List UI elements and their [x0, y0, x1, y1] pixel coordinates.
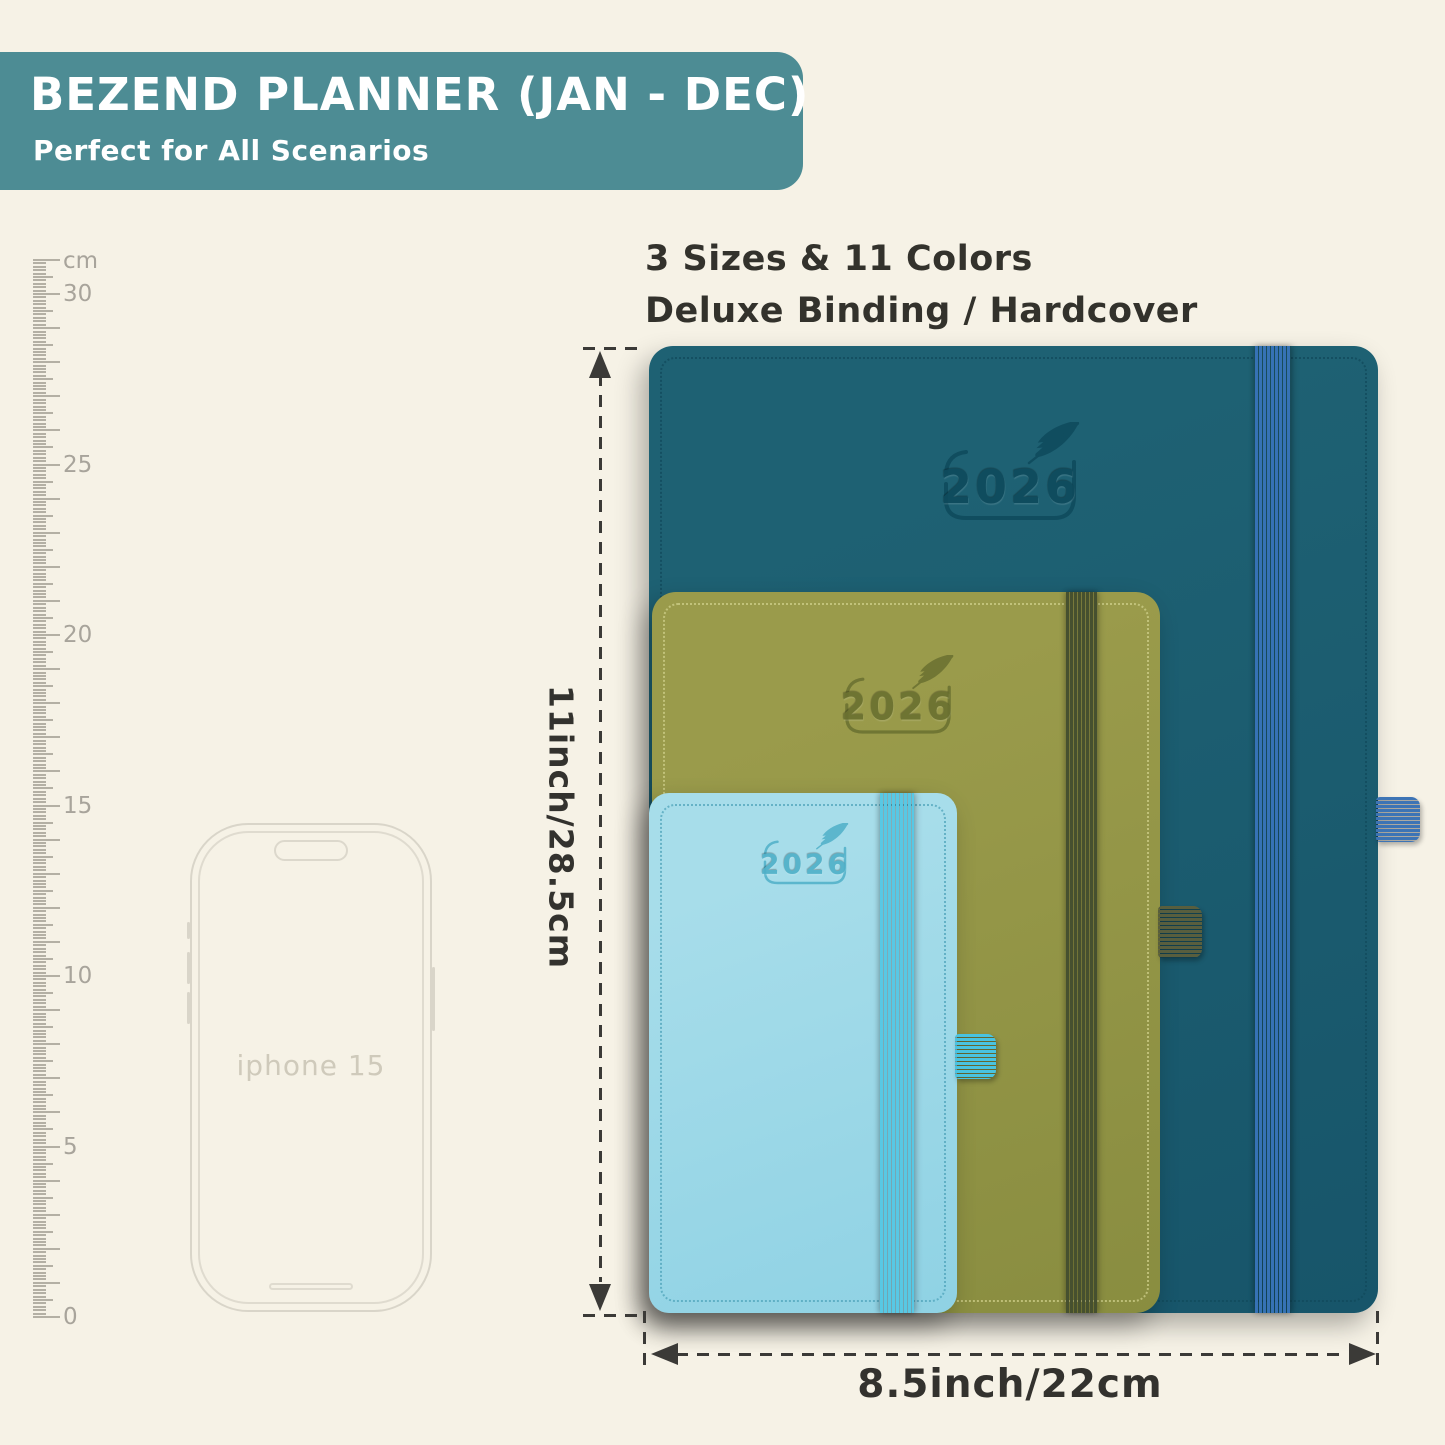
ruler-tick: [33, 1019, 46, 1021]
ruler-tick: [33, 286, 46, 288]
ruler-tick: [33, 399, 46, 401]
ruler-tick: [33, 481, 53, 483]
ruler-tick: [33, 1135, 46, 1137]
ruler-tick: [33, 944, 46, 946]
ruler-tick: [33, 805, 60, 807]
ruler-tick: [33, 361, 60, 363]
elastic-band-medium: [1066, 592, 1097, 1313]
ruler-tick: [33, 535, 46, 537]
ruler-tick: [33, 484, 46, 486]
ruler-tick: [33, 794, 46, 796]
ruler-tick: [33, 378, 53, 380]
ruler-tick: [33, 1060, 53, 1062]
ruler-tick: [33, 1040, 46, 1042]
ruler-tick: [33, 1258, 46, 1260]
width-dimension-label: 8.5inch/22cm: [857, 1362, 1162, 1407]
ruler-tick: [33, 549, 53, 551]
iphone-outline: iphone 15: [190, 823, 432, 1312]
ruler-tick: [33, 883, 46, 885]
ruler-tick: [33, 648, 46, 650]
ruler-tick: [33, 903, 46, 905]
arrow-up-icon: [589, 351, 611, 378]
ruler-tick: [33, 1009, 60, 1011]
ruler-tick: [33, 542, 46, 544]
ruler-tick: [33, 695, 46, 697]
ruler-tick: [33, 617, 53, 619]
ruler-tick: [33, 590, 46, 592]
ruler-tick: [33, 753, 53, 755]
ruler-tick: [33, 736, 60, 738]
ruler-tick: [33, 839, 60, 841]
ruler-tick: [33, 566, 60, 568]
ruler-tick: [33, 808, 46, 810]
ruler-tick: [33, 907, 60, 909]
ruler-tick: [33, 818, 46, 820]
ruler-tick: [33, 1122, 46, 1124]
ruler-tick: [33, 651, 53, 653]
ruler-tick: [33, 491, 46, 493]
ruler-unit-label: cm: [63, 248, 98, 274]
ruler-tick: [33, 1169, 46, 1171]
ruler-tick: [33, 392, 46, 394]
ruler-tick: [33, 1047, 46, 1049]
ruler-tick: [33, 276, 53, 278]
ruler-tick: [33, 1214, 60, 1216]
ruler-tick: [33, 1299, 53, 1301]
ruler-tick: [33, 559, 46, 561]
ruler-tick: [33, 511, 46, 513]
ruler-tick: [33, 1105, 46, 1107]
ruler-tick: [33, 893, 46, 895]
ruler-tick: [33, 460, 46, 462]
ruler-tick: [33, 685, 53, 687]
ruler-tick: [33, 487, 46, 489]
ruler-tick: [33, 941, 60, 943]
ruler-tick: [33, 719, 53, 721]
ruler-tick: [33, 689, 46, 691]
ruler-tick: [33, 1180, 60, 1182]
ruler-tick: [33, 880, 46, 882]
year-logo-medium: 2026: [834, 655, 962, 745]
ruler-tick: [33, 348, 46, 350]
year-logo-small: 2026: [755, 823, 855, 893]
banner-title: BEZEND PLANNER (JAN - DEC): [30, 68, 809, 121]
ruler-tick: [33, 569, 46, 571]
ruler-tick: [33, 1149, 46, 1151]
ruler-tick: [33, 842, 46, 844]
ruler-tick: [33, 607, 46, 609]
product-infographic: BEZEND PLANNER (JAN - DEC) Perfect for A…: [0, 0, 1445, 1445]
ruler-tick: [33, 637, 46, 639]
ruler-tick: [33, 1026, 53, 1028]
ruler-label: 30: [63, 281, 123, 307]
ruler-tick: [33, 1265, 53, 1267]
ruler-tick: [33, 406, 46, 408]
ruler-tick: [33, 576, 46, 578]
iphone-volume-up-button: [187, 952, 190, 984]
ruler-tick: [33, 1224, 46, 1226]
ruler-tick: [33, 477, 46, 479]
ruler-tick: [33, 828, 46, 830]
ruler-tick: [33, 886, 46, 888]
ruler-tick: [33, 972, 46, 974]
ruler-tick: [33, 453, 46, 455]
ruler-tick: [33, 1111, 60, 1113]
ruler-tick: [33, 815, 46, 817]
ruler-tick: [33, 965, 46, 967]
ruler-tick: [33, 835, 46, 837]
ruler-tick: [33, 958, 53, 960]
ruler-tick: [33, 504, 46, 506]
ruler-tick: [33, 917, 46, 919]
ruler-tick: [33, 1053, 46, 1055]
ruler-tick: [33, 1094, 53, 1096]
ruler-tick: [33, 777, 46, 779]
ruler-tick: [33, 1091, 46, 1093]
ruler-tick: [33, 1067, 46, 1069]
arrow-down-icon: [589, 1284, 611, 1311]
width-extension-left: [643, 1311, 646, 1373]
ruler-tick: [33, 989, 46, 991]
height-extension-top: [583, 347, 645, 350]
ruler-tick: [33, 961, 46, 963]
ruler-tick: [33, 423, 46, 425]
ruler-tick: [33, 371, 46, 373]
ruler-tick: [33, 1238, 46, 1240]
ruler-tick: [33, 508, 46, 510]
ruler-tick: [33, 1302, 46, 1304]
ruler-tick: [33, 262, 46, 264]
ruler-tick: [33, 395, 60, 397]
ruler-tick: [33, 1070, 46, 1072]
ruler-tick: [33, 781, 46, 783]
ruler-tick: [33, 968, 46, 970]
ruler-tick: [33, 409, 46, 411]
ruler-tick: [33, 760, 46, 762]
ruler-tick: [33, 1207, 46, 1209]
ruler-tick: [33, 1163, 53, 1165]
ruler-tick: [33, 767, 46, 769]
width-extension-right: [1376, 1311, 1379, 1373]
ruler-tick: [33, 279, 46, 281]
ruler-tick: [33, 419, 46, 421]
ruler-tick: [33, 429, 60, 431]
ruler-tick: [33, 1186, 46, 1188]
ruler-tick: [33, 1098, 46, 1100]
ruler-tick: [33, 644, 46, 646]
ruler-tick: [33, 869, 46, 871]
ruler-tick: [33, 1132, 46, 1134]
ruler-tick: [33, 614, 46, 616]
ruler-tick: [33, 1248, 60, 1250]
ruler-tick: [33, 641, 46, 643]
ruler-tick: [33, 624, 46, 626]
ruler-tick: [33, 774, 46, 776]
ruler-tick: [33, 852, 46, 854]
pen-loop-medium: [1158, 906, 1202, 958]
ruler-tick: [33, 440, 46, 442]
ruler-tick: [33, 1275, 46, 1277]
feather-icon: [1029, 422, 1080, 463]
ruler-tick: [33, 992, 53, 994]
ruler-tick: [33, 426, 46, 428]
ruler-tick: [33, 1023, 46, 1025]
ruler-tick: [33, 1064, 46, 1066]
ruler-tick: [33, 764, 46, 766]
year-text-large: 2026: [940, 460, 1080, 514]
ruler-tick: [33, 627, 46, 629]
ruler-tick: [33, 995, 46, 997]
ruler-tick: [33, 467, 46, 469]
ruler-tick: [33, 532, 60, 534]
ruler-tick: [33, 890, 53, 892]
ruler-tick: [33, 446, 53, 448]
ruler-tick: [33, 658, 46, 660]
ruler-tick: [33, 450, 46, 452]
ruler-tick: [33, 733, 46, 735]
ruler-tick: [33, 320, 46, 322]
ruler-tick: [33, 665, 46, 667]
ruler-tick: [33, 351, 46, 353]
arrow-right-icon: [1349, 1343, 1376, 1365]
ruler-tick: [33, 1234, 46, 1236]
ruler-tick: [33, 1221, 46, 1223]
ruler-tick: [33, 1002, 46, 1004]
ruler-tick: [33, 1081, 46, 1083]
iphone-dynamic-island: [274, 840, 348, 861]
ruler-tick: [33, 1278, 46, 1280]
ruler-tick: [33, 525, 46, 527]
ruler-tick: [33, 1115, 46, 1117]
ruler-tick: [33, 702, 60, 704]
ruler-tick: [33, 358, 46, 360]
ruler-tick: [33, 293, 60, 295]
ruler-tick: [33, 937, 46, 939]
ruler-tick: [33, 900, 46, 902]
ruler-tick: [33, 303, 46, 305]
ruler-tick: [33, 1108, 46, 1110]
ruler-label: 25: [63, 452, 123, 478]
ruler-tick: [33, 982, 46, 984]
ruler-tick: [33, 313, 46, 315]
ruler-tick: [33, 712, 46, 714]
ruler-tick: [33, 1077, 60, 1079]
ruler-tick: [33, 1251, 46, 1253]
ruler-tick: [33, 1128, 53, 1130]
ruler-tick: [33, 1173, 46, 1175]
ruler-tick: [33, 1074, 46, 1076]
ruler-tick: [33, 307, 46, 309]
ruler: 051015202530cm: [33, 0, 143, 1445]
feature-line-sizes-colors: 3 Sizes & 11 Colors: [645, 233, 1198, 285]
ruler-tick: [33, 1125, 46, 1127]
year-text-medium: 2026: [841, 686, 956, 729]
ruler-tick: [33, 433, 46, 435]
ruler-tick: [33, 1146, 60, 1148]
ruler-tick: [33, 1268, 46, 1270]
ruler-tick: [33, 1030, 46, 1032]
ruler-tick: [33, 1261, 46, 1263]
iphone-speaker-slot: [269, 1283, 353, 1290]
ruler-tick: [33, 324, 46, 326]
ruler-tick: [33, 494, 46, 496]
ruler-tick: [33, 1152, 46, 1154]
ruler-tick: [33, 675, 46, 677]
ruler-tick: [33, 849, 46, 851]
ruler-tick: [33, 1159, 46, 1161]
ruler-tick: [33, 521, 46, 523]
ruler-label: 15: [63, 793, 123, 819]
ruler-tick: [33, 862, 46, 864]
ruler-tick: [33, 661, 46, 663]
pen-loop-large: [1376, 797, 1420, 842]
iphone-volume-down-button: [187, 992, 190, 1024]
ruler-tick: [33, 412, 53, 414]
ruler-tick: [33, 1227, 46, 1229]
ruler-tick: [33, 948, 46, 950]
ruler-tick: [33, 464, 60, 466]
ruler-tick: [33, 672, 46, 674]
ruler-tick: [33, 927, 46, 929]
ruler-tick: [33, 1016, 46, 1018]
ruler-tick: [33, 897, 46, 899]
ruler-tick: [33, 955, 46, 957]
iphone-power-button: [432, 967, 435, 1031]
ruler-tick: [33, 1309, 46, 1311]
elastic-band-small: [880, 793, 914, 1313]
arrow-left-icon: [651, 1343, 678, 1365]
iphone-label: iphone 15: [192, 1049, 430, 1082]
ruler-tick: [33, 1200, 46, 1202]
ruler-tick: [33, 1272, 46, 1274]
ruler-tick: [33, 1285, 46, 1287]
ruler-tick: [33, 1210, 46, 1212]
ruler-tick: [33, 801, 46, 803]
ruler-tick: [33, 1043, 60, 1045]
iphone-mute-switch: [187, 922, 190, 939]
ruler-tick: [33, 290, 46, 292]
ruler-label: 20: [63, 622, 123, 648]
ruler-tick: [33, 259, 60, 261]
ruler-tick: [33, 682, 46, 684]
ruler-tick: [33, 1006, 46, 1008]
ruler-tick: [33, 596, 46, 598]
ruler-tick: [33, 474, 46, 476]
ruler-tick: [33, 1244, 46, 1246]
ruler-tick: [33, 603, 46, 605]
ruler-tick: [33, 740, 46, 742]
ruler-tick: [33, 501, 46, 503]
ruler-tick: [33, 327, 60, 329]
ruler-tick: [33, 873, 60, 875]
ruler-tick: [33, 354, 46, 356]
ruler-tick: [33, 747, 46, 749]
ruler-tick: [33, 1296, 46, 1298]
ruler-tick: [33, 1176, 46, 1178]
ruler-tick: [33, 610, 46, 612]
ruler-tick: [33, 716, 46, 718]
ruler-tick: [33, 1316, 60, 1318]
ruler-tick: [33, 436, 46, 438]
ruler-tick: [33, 1101, 46, 1103]
ruler-tick: [33, 344, 53, 346]
ruler-tick: [33, 296, 46, 298]
ruler-tick: [33, 784, 46, 786]
ruler-tick: [33, 845, 46, 847]
ruler-tick: [33, 811, 46, 813]
ruler-tick: [33, 443, 46, 445]
ruler-tick: [33, 317, 46, 319]
ruler-tick: [33, 999, 46, 1001]
feather-icon: [913, 655, 954, 688]
ruler-tick: [33, 743, 46, 745]
ruler-tick: [33, 1193, 46, 1195]
ruler-tick: [33, 1241, 46, 1243]
ruler-tick: [33, 337, 46, 339]
ruler-tick: [33, 750, 46, 752]
year-logo-large: 2026: [930, 422, 1090, 534]
ruler-tick: [33, 586, 46, 588]
ruler-tick: [33, 1197, 53, 1199]
ruler-tick: [33, 856, 53, 858]
ruler-tick: [33, 668, 60, 670]
ruler-tick: [33, 334, 46, 336]
ruler-tick: [33, 600, 60, 602]
ruler-tick: [33, 573, 46, 575]
ruler-tick: [33, 515, 53, 517]
ruler-tick: [33, 1033, 46, 1035]
ruler-tick: [33, 583, 53, 585]
ruler-tick: [33, 1118, 46, 1120]
feature-text: 3 Sizes & 11 Colors Deluxe Binding / Har…: [645, 233, 1198, 337]
ruler-tick: [33, 654, 46, 656]
ruler-tick: [33, 757, 46, 759]
ruler-tick: [33, 1313, 46, 1315]
ruler-tick: [33, 726, 46, 728]
height-dimension-label: 11inch/28.5cm: [542, 685, 581, 969]
feature-line-binding: Deluxe Binding / Hardcover: [645, 285, 1198, 337]
ruler-tick: [33, 579, 46, 581]
ruler-tick: [33, 1050, 46, 1052]
ruler-tick: [33, 832, 46, 834]
ruler-tick: [33, 951, 46, 953]
ruler-tick: [33, 978, 46, 980]
ruler-tick: [33, 283, 46, 285]
pen-loop-small: [955, 1034, 996, 1079]
ruler-tick: [33, 300, 46, 302]
ruler-tick: [33, 416, 46, 418]
ruler-tick: [33, 593, 46, 595]
ruler-tick: [33, 1292, 46, 1294]
ruler-tick: [33, 920, 46, 922]
ruler-tick: [33, 876, 46, 878]
width-dimension-line: [676, 1353, 1348, 1356]
ruler-tick: [33, 631, 46, 633]
ruler-tick: [33, 1231, 53, 1233]
height-extension-bottom: [583, 1314, 645, 1317]
ruler-tick: [33, 1306, 46, 1308]
ruler-tick: [33, 699, 46, 701]
ruler-tick: [33, 931, 46, 933]
ruler-tick: [33, 562, 46, 564]
ruler-label: 5: [63, 1134, 123, 1160]
year-text-small: 2026: [760, 847, 850, 880]
ruler-tick: [33, 1142, 46, 1144]
height-dimension-line: [599, 374, 602, 1282]
ruler-tick: [33, 402, 46, 404]
ruler-tick: [33, 1084, 46, 1086]
ruler-tick: [33, 539, 46, 541]
